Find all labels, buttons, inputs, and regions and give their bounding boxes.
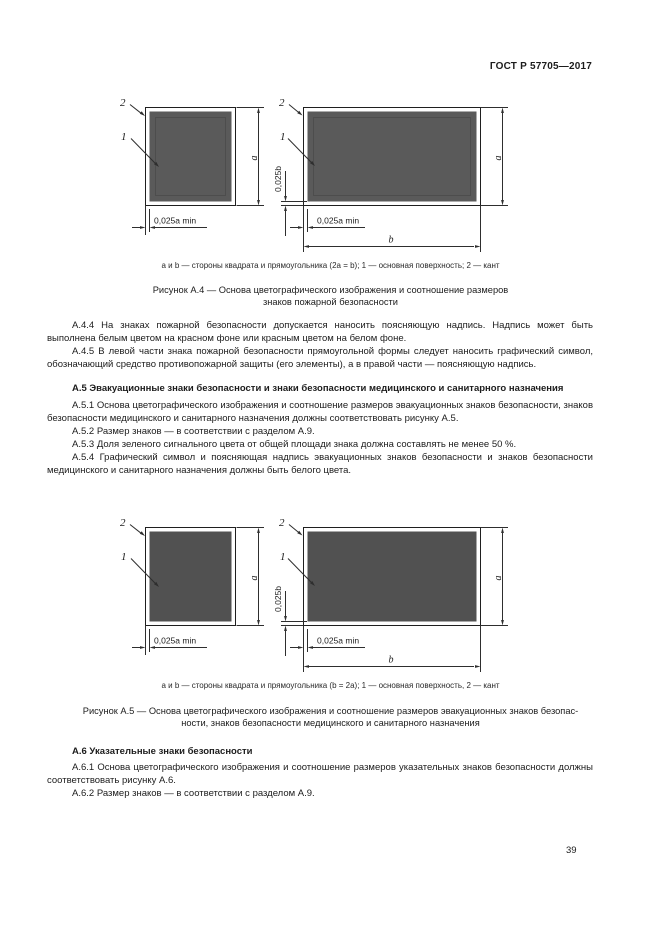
rect-main-surface [308,532,477,622]
callout-main-surface-label: 1 [280,551,286,563]
dim-edging-width-label: 0,025a min [154,216,196,226]
figure-a4-legend: а и b — стороны квадрата и прямоугольник… [40,261,621,270]
paragraph-a-6-2: А.6.2 Размер знаков — в соответствии с р… [47,787,593,800]
dim-b-label: b [389,655,394,666]
square-main-surface [150,532,232,622]
figure-a4-caption: Рисунок А.4 — Основа цветографического и… [40,284,621,308]
heading-a-6: А.6 Указательные знаки безопасности [72,745,593,758]
section-a4-a5-text: А.4.4 На знаках пожарной безопасности до… [47,319,593,477]
dim-a-label: a [249,576,260,581]
figure-a5-caption-line2: ности, знаков безопасности медицинского … [40,717,621,729]
a4-square [146,108,236,206]
paragraph-a-4-5: А.4.5 В левой части знака пожарной безоп… [47,345,593,371]
doc-number-header: ГОСТ Р 57705—2017 [47,61,592,72]
paragraph-a-5-1: А.5.1 Основа цветографического изображен… [47,399,593,425]
callout-edging-label: 2 [120,97,126,109]
paragraph-a-5-2: А.5.2 Размер знаков — в соответствии с р… [47,425,593,438]
heading-a-5: А.5 Эвакуационные знаки безопасности и з… [72,382,593,395]
a5-square [146,528,236,626]
dim-a-label: a [493,576,504,581]
callout-edging-label: 2 [120,517,126,529]
dim-edging-height-label: 0,025b [273,166,283,192]
paragraph-a-4-4: А.4.4 На знаках пожарной безопасности до… [47,319,593,345]
dim-a-label: a [493,156,504,161]
callout-edging-label: 2 [279,517,285,529]
paragraph-a-5-3: А.5.3 Доля зеленого сигнального цвета от… [47,438,593,451]
paragraph-a-5-4: А.5.4 Графический символ и поясняющая на… [47,451,593,477]
callout-edging-label: 2 [279,97,285,109]
figure-a4-caption-line1: Рисунок А.4 — Основа цветографического и… [40,284,621,296]
a4-rectangle [304,108,481,206]
dim-b-label: b [389,235,394,246]
dim-edging-width-label: 0,025a min [317,216,359,226]
callout-main-surface-label: 1 [121,551,127,563]
dim-edging-width-label: 0,025a min [317,636,359,646]
paragraph-a-6-1: А.6.1 Основа цветографического изображен… [47,761,593,787]
figure-a5-caption-line1: Рисунок А.5 — Основа цветографического и… [40,705,621,717]
figure-a5-caption: Рисунок А.5 — Основа цветографического и… [40,705,621,729]
rect-main-surface [308,112,477,202]
document-page: ГОСТ Р 57705—2017 2 1 a [0,0,661,935]
section-a6-text: А.6 Указательные знаки безопасности А.6.… [47,745,593,800]
page-number: 39 [566,845,577,856]
figure-a5-legend: а и b — стороны квадрата и прямоугольник… [40,681,621,690]
square-main-surface [150,112,232,202]
figure-a5-drawing: 2 1 a 0,025a min 2 [70,505,530,677]
dim-edging-height-label: 0,025b [273,586,283,612]
a5-rectangle [304,528,481,626]
callout-main-surface-label: 1 [280,131,286,143]
callout-main-surface-label: 1 [121,131,127,143]
dim-a-label: a [249,156,260,161]
figure-a4-caption-line2: знаков пожарной безопасности [40,296,621,308]
dim-edging-width-label: 0,025a min [154,636,196,646]
figure-a4-drawing: 2 1 a 0,025a min [70,85,530,257]
